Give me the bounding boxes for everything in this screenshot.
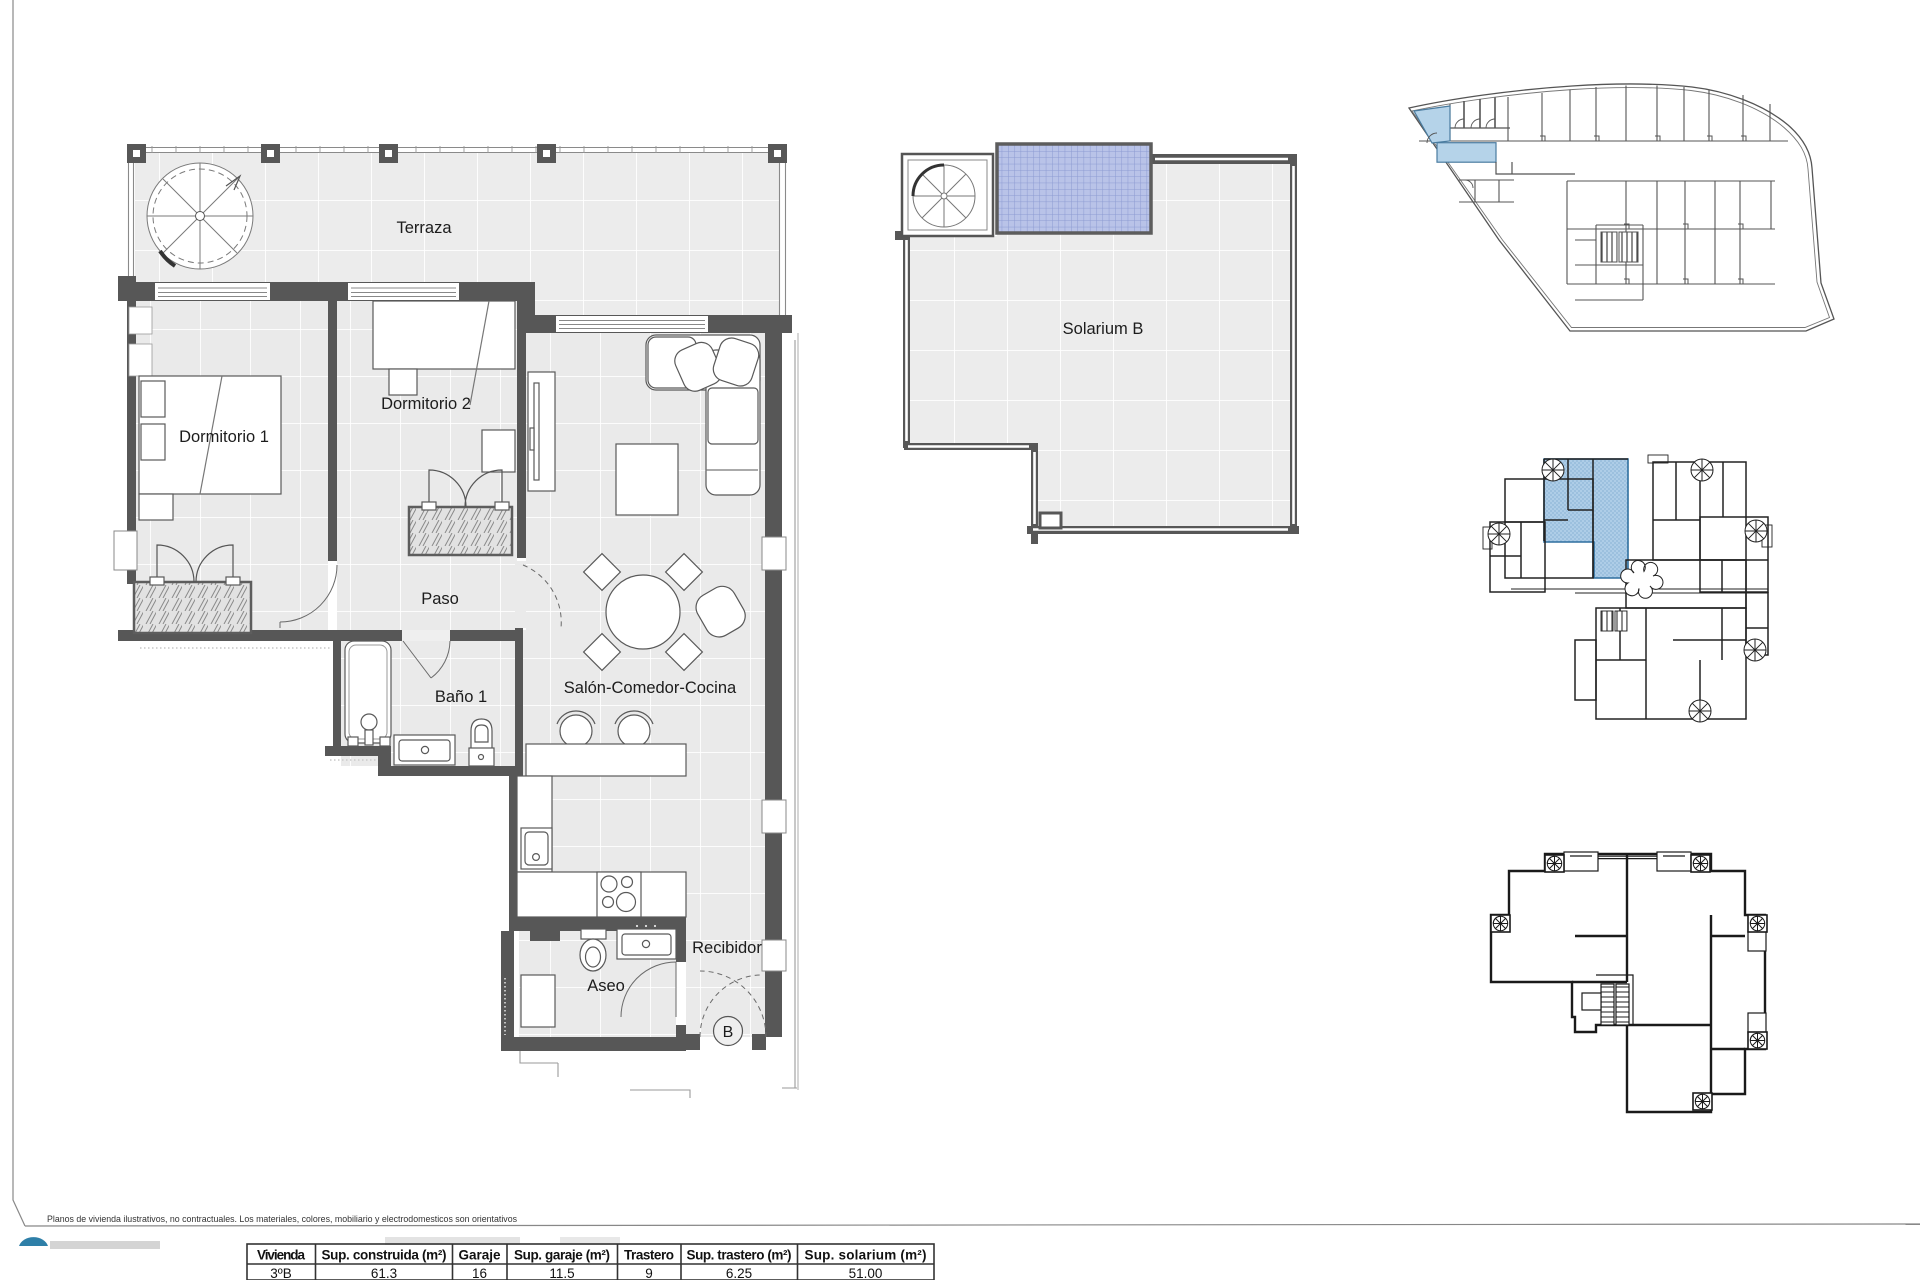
svg-text:Baño 1: Baño 1 [435, 688, 487, 706]
svg-text:B: B [723, 1024, 734, 1041]
svg-text:Dormitorio 2: Dormitorio 2 [381, 395, 471, 413]
svg-text:Aseo: Aseo [587, 977, 625, 995]
svg-text:Planos de vivienda ilustrativo: Planos de vivienda ilustrativos, no cont… [47, 1214, 517, 1224]
svg-text:Terraza: Terraza [396, 219, 452, 237]
svg-text:3ºB: 3ºB [270, 1266, 291, 1280]
svg-text:16: 16 [472, 1266, 487, 1280]
svg-text:Solarium B: Solarium B [1063, 320, 1144, 338]
svg-text:61.3: 61.3 [371, 1266, 397, 1280]
svg-text:Vivienda: Vivienda [257, 1248, 305, 1263]
svg-text:Dormitorio 1: Dormitorio 1 [179, 428, 269, 446]
svg-text:Sup. construida (m²): Sup. construida (m²) [322, 1248, 447, 1263]
svg-text:Sup. trastero (m²): Sup. trastero (m²) [687, 1248, 792, 1263]
svg-text:Garaje: Garaje [459, 1248, 501, 1263]
svg-text:9: 9 [645, 1266, 653, 1280]
svg-text:Trastero: Trastero [624, 1248, 674, 1263]
svg-text:6.25: 6.25 [726, 1266, 752, 1280]
svg-text:11.5: 11.5 [549, 1266, 574, 1280]
svg-text:Salón-Comedor-Cocina: Salón-Comedor-Cocina [564, 679, 737, 697]
svg-text:Paso: Paso [421, 590, 459, 608]
svg-text:Recibidor: Recibidor [692, 939, 762, 957]
svg-text:51.00: 51.00 [849, 1266, 883, 1280]
svg-text:Sup. garaje (m²): Sup. garaje (m²) [514, 1248, 610, 1263]
svg-text:Sup. solarium (m²): Sup. solarium (m²) [805, 1248, 927, 1263]
